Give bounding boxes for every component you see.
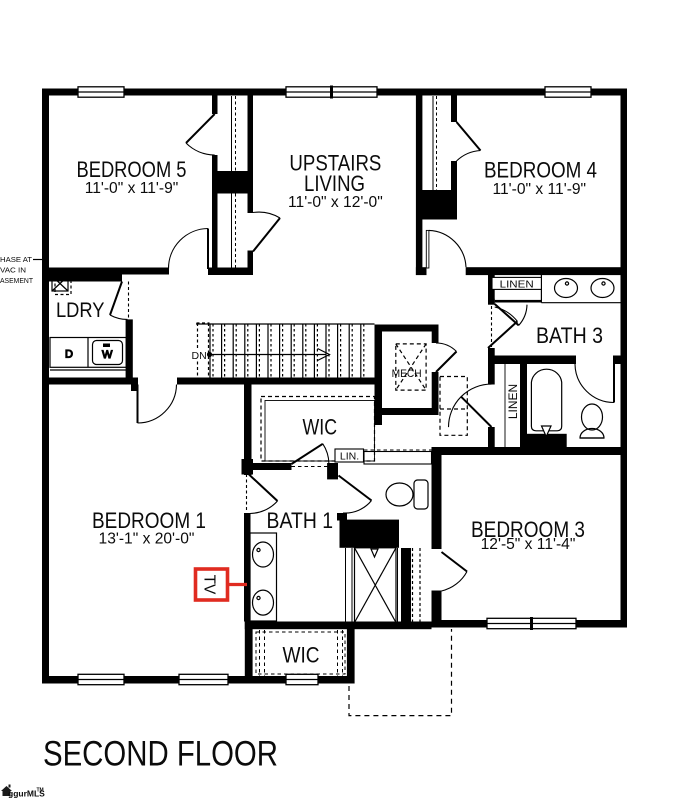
svg-text:SECOND FLOOR: SECOND FLOOR [43, 735, 278, 774]
svg-text:BATH 1: BATH 1 [267, 508, 334, 533]
svg-text:BEDROOM 5: BEDROOM 5 [77, 157, 187, 182]
svg-text:TV: TV [201, 575, 218, 595]
svg-text:WIC: WIC [303, 415, 338, 440]
svg-text:BATH 3: BATH 3 [536, 323, 603, 348]
svg-text:LDRY: LDRY [56, 298, 105, 322]
svg-text:11'-0" x 12'-0": 11'-0" x 12'-0" [288, 194, 383, 211]
svg-text:11'-0" x 11'-9": 11'-0" x 11'-9" [493, 181, 587, 198]
svg-text:W: W [102, 349, 113, 361]
svg-text:BEDROOM 1: BEDROOM 1 [92, 508, 206, 533]
svg-text:HASE AT: HASE AT [0, 255, 32, 264]
svg-text:LIVING: LIVING [304, 171, 365, 196]
svg-text:BEDROOM 4: BEDROOM 4 [484, 158, 597, 183]
svg-text:WIC: WIC [283, 642, 320, 667]
svg-text:LIN.: LIN. [340, 451, 359, 463]
svg-text:13'-1" x 20'-0": 13'-1" x 20'-0" [99, 530, 195, 547]
svg-text:12'-5" x 11'-4": 12'-5" x 11'-4" [481, 536, 576, 553]
svg-text:11'-0" x 11'-9": 11'-0" x 11'-9" [85, 180, 179, 197]
svg-text:D: D [65, 349, 73, 361]
svg-text:LINEN: LINEN [500, 279, 534, 291]
svg-text:LINEN: LINEN [506, 384, 520, 419]
svg-text:MECH: MECH [392, 368, 422, 380]
svg-text:DN: DN [192, 350, 207, 362]
svg-text:TM: TM [37, 788, 44, 794]
svg-text:VAC IN: VAC IN [0, 266, 26, 275]
svg-text:ASEMENT: ASEMENT [0, 276, 33, 285]
